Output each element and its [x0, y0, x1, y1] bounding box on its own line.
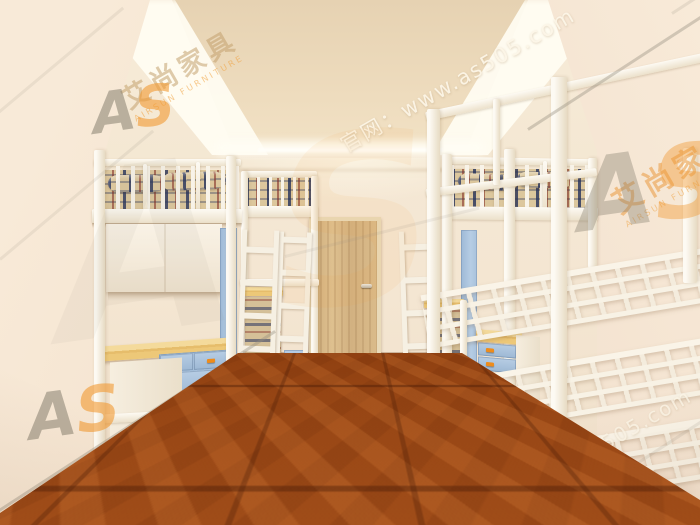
- guardrail-divider: [143, 164, 147, 212]
- guardrail-balusters: [101, 166, 239, 212]
- rack-connector: [493, 99, 500, 185]
- door: [309, 217, 381, 358]
- bunk-deck: [92, 209, 242, 223]
- bed-post: [311, 176, 318, 414]
- rack-post: [427, 109, 440, 525]
- bunk-deck: [241, 206, 318, 217]
- guardrail-divider: [196, 162, 200, 212]
- cabinet-door-divider: [164, 224, 166, 292]
- bunk-rail: [94, 159, 241, 166]
- cove-light-line: [258, 148, 443, 152]
- drawer: [194, 351, 227, 370]
- bed-foot: [226, 462, 236, 468]
- bunk-deck: [444, 206, 598, 220]
- dormitory-room-render: 官网：www.as505.com 官网：www.as505.com 官网：www…: [0, 0, 700, 525]
- door-handle: [361, 284, 372, 288]
- overhead-cabinet: [106, 224, 222, 292]
- bed-ladder: [273, 231, 312, 408]
- rack-post: [551, 77, 567, 525]
- bed-ladder: [236, 229, 280, 418]
- bed-post: [94, 150, 105, 470]
- bed-post: [226, 156, 236, 466]
- drawer-handle: [486, 348, 494, 353]
- rack-post: [460, 300, 467, 525]
- drawer-handle: [486, 362, 494, 367]
- rack-post: [683, 148, 697, 283]
- cabinet-shadow: [108, 292, 222, 301]
- door-leaf: [313, 221, 377, 356]
- drawer-handle: [207, 358, 215, 363]
- guardrail-divider: [543, 161, 547, 211]
- bed-foot: [94, 468, 105, 474]
